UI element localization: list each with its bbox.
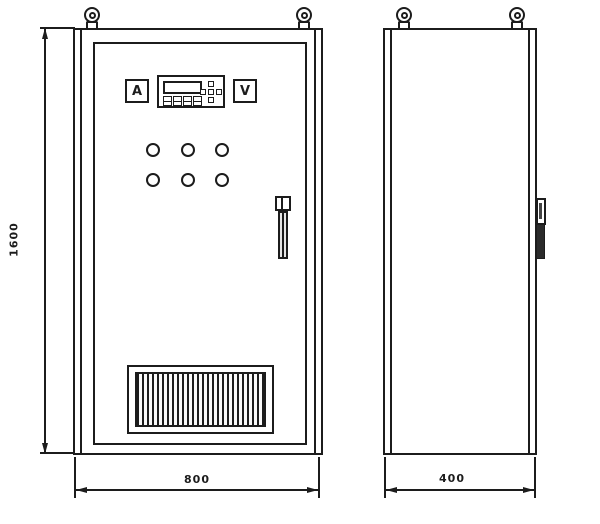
lifting-eye-icon: [395, 7, 413, 31]
cabinet-door: A V: [93, 42, 307, 445]
lifting-eye-base: [511, 21, 523, 28]
depth-dimension-label: 400: [432, 472, 472, 485]
voltmeter-label-box: V: [233, 79, 257, 103]
lifting-eye-hole: [301, 12, 308, 19]
lifting-eye-base: [398, 21, 410, 28]
vent-grille: [127, 365, 274, 434]
handle-profile-top: [536, 198, 546, 225]
frame-line-right: [314, 30, 316, 453]
drawing-canvas: A V: [0, 0, 600, 524]
width-dimension-line: [75, 489, 319, 491]
indicator-light: [215, 143, 229, 157]
lifting-eye-base: [298, 21, 310, 28]
lifting-eye-hole: [514, 12, 521, 19]
voltmeter-label: V: [240, 84, 250, 99]
lcd-screen: [163, 81, 202, 94]
dpad-up-button: [208, 81, 214, 87]
control-display-unit: [157, 75, 225, 108]
dimension-arrow-left-icon: [76, 487, 87, 493]
door-handle: [278, 211, 288, 259]
extension-line-right: [534, 457, 536, 498]
keypad-button: [183, 96, 192, 106]
side-view: [383, 28, 537, 455]
frame-line-right: [528, 30, 530, 453]
dimension-arrow-right-icon: [523, 487, 534, 493]
indicator-light: [146, 143, 160, 157]
depth-dimension-line: [385, 489, 535, 491]
frame-line-left: [390, 30, 392, 453]
front-view: A V: [73, 28, 323, 455]
lifting-eye-base: [86, 21, 98, 28]
dimension-arrow-left-icon: [386, 487, 397, 493]
indicator-light: [215, 173, 229, 187]
indicator-light: [181, 143, 195, 157]
extension-line-right: [318, 457, 320, 498]
dimension-arrow-down-icon: [42, 443, 48, 454]
lifting-eye-hole: [89, 12, 96, 19]
keypad-button: [173, 96, 182, 106]
ammeter-label-box: A: [125, 79, 149, 103]
lifting-eye-icon: [83, 7, 101, 31]
handle-profile-bar: [536, 224, 545, 259]
vent-grille-slats: [135, 372, 266, 427]
lifting-eye-icon: [295, 7, 313, 31]
lifting-eye-icon: [508, 7, 526, 31]
height-dimension-label: 1600: [8, 220, 21, 260]
lifting-eye-hole: [401, 12, 408, 19]
dimension-arrow-right-icon: [307, 487, 318, 493]
ammeter-label: A: [132, 84, 142, 99]
indicator-light: [146, 173, 160, 187]
dpad-down-button: [208, 97, 214, 103]
keypad-button: [193, 96, 202, 106]
dpad-center-button: [208, 89, 214, 95]
keypad: [163, 96, 202, 106]
keypad-button: [163, 96, 172, 106]
indicator-light: [181, 173, 195, 187]
dimension-arrow-up-icon: [42, 28, 48, 39]
height-dimension-line: [44, 29, 46, 453]
door-lock: [275, 196, 291, 211]
width-dimension-label: 800: [177, 473, 217, 486]
dpad-right-button: [216, 89, 222, 95]
frame-line-left: [80, 30, 82, 453]
dpad-left-button: [200, 89, 206, 95]
